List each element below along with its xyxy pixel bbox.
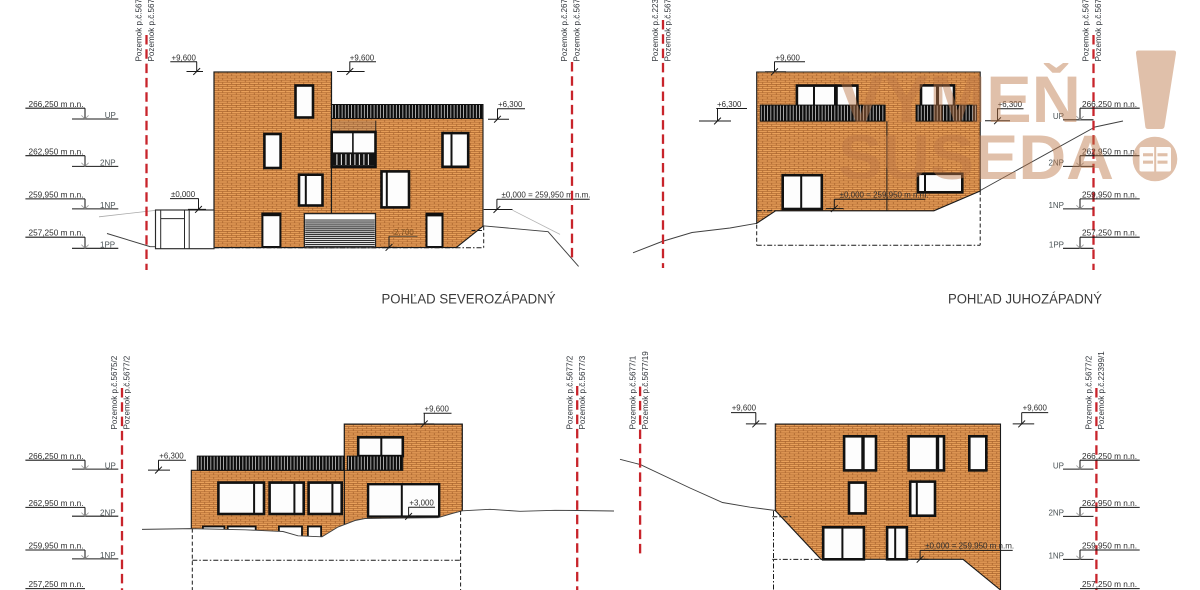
svg-text:Pozemok p.č.22399/1: Pozemok p.č.22399/1: [1097, 351, 1106, 430]
svg-text:262,950 m n.n.: 262,950 m n.n.: [29, 498, 84, 508]
svg-text:1NP: 1NP: [1048, 201, 1064, 210]
svg-text:259,950 m n.n.: 259,950 m n.n.: [29, 541, 84, 551]
svg-text:2NP: 2NP: [100, 159, 116, 168]
svg-text:1NP: 1NP: [100, 201, 116, 210]
svg-text:Pozemok p.č.5675/2: Pozemok p.č.5675/2: [135, 0, 144, 62]
svg-text:Pozemok p.č.5677/3: Pozemok p.č.5677/3: [578, 355, 587, 429]
svg-text:+3,000: +3,000: [409, 498, 434, 507]
svg-text:Pozemok p.č.5677/2: Pozemok p.č.5677/2: [147, 0, 156, 62]
svg-text:+6,300: +6,300: [717, 100, 742, 109]
svg-text:1PP: 1PP: [100, 241, 115, 250]
svg-text:POHĽAD JUHOZÁPADNÝ: POHĽAD JUHOZÁPADNÝ: [948, 291, 1102, 308]
svg-text:Pozemok p.č.5677/2: Pozemok p.č.5677/2: [565, 355, 574, 429]
svg-text:262,950 m n.n.: 262,950 m n.n.: [1082, 498, 1137, 508]
svg-text:+6,300: +6,300: [159, 452, 184, 461]
svg-text:UP: UP: [105, 461, 116, 470]
svg-text:Pozemok p.č.5677/19: Pozemok p.č.5677/19: [641, 351, 650, 430]
svg-text:266,250 m n.n.: 266,250 m n.n.: [29, 99, 84, 109]
svg-text:Pozemok p.č.22399/1: Pozemok p.č.22399/1: [651, 0, 660, 62]
svg-text:±0,000 = 259,950 m n.m.: ±0,000 = 259,950 m n.m.: [925, 542, 1014, 551]
svg-text:Pozemok p.č.5677/2: Pozemok p.č.5677/2: [1082, 0, 1091, 62]
svg-text:266,250 m n.n.: 266,250 m n.n.: [1082, 99, 1137, 109]
svg-text:POHĽAD SEVEROZÁPADNÝ: POHĽAD SEVEROZÁPADNÝ: [382, 291, 556, 308]
svg-text:Pozemok p.č.5677/2: Pozemok p.č.5677/2: [123, 355, 132, 429]
svg-text:Pozemok p.č.5677/1: Pozemok p.č.5677/1: [628, 355, 637, 429]
svg-text:262,950 m n.n.: 262,950 m n.n.: [29, 146, 84, 156]
svg-text:266,250 m n.n.: 266,250 m n.n.: [1082, 451, 1137, 461]
svg-text:257,250 m n.n.: 257,250 m n.n.: [1082, 579, 1137, 589]
svg-text:1PP: 1PP: [1049, 241, 1064, 250]
svg-text:1NP: 1NP: [1048, 552, 1064, 561]
svg-text:266,250 m n.n.: 266,250 m n.n.: [29, 451, 84, 461]
svg-text:SUSEDA: SUSEDA: [838, 123, 1114, 193]
svg-text:+9,600: +9,600: [172, 53, 197, 62]
svg-text:2NP: 2NP: [100, 509, 116, 518]
svg-text:259,950 m n.n.: 259,950 m n.n.: [29, 189, 84, 199]
svg-text:1NP: 1NP: [100, 551, 116, 560]
svg-text:+9,600: +9,600: [425, 405, 450, 414]
svg-text:257,250 m n.n.: 257,250 m n.n.: [29, 579, 84, 589]
svg-text:Pozemok p.č.2673/1: Pozemok p.č.2673/1: [560, 0, 569, 62]
svg-text:UP: UP: [105, 111, 116, 120]
svg-text:Pozemok p.č.5672/2: Pozemok p.č.5672/2: [573, 0, 582, 62]
svg-text:±0,000 = 259,950 m n.m.: ±0,000 = 259,950 m n.m.: [502, 190, 591, 199]
svg-text:Pozemok p.č.5675/2: Pozemok p.č.5675/2: [1094, 0, 1103, 62]
svg-text:257,250 m n.n.: 257,250 m n.n.: [29, 228, 84, 238]
svg-text:+9,600: +9,600: [1023, 404, 1048, 413]
svg-text:+6,300: +6,300: [498, 100, 523, 109]
svg-text:UP: UP: [1053, 461, 1064, 470]
svg-text:259,950 m n.n.: 259,950 m n.n.: [1082, 541, 1137, 551]
svg-text:Pozemok p.č.5677/19: Pozemok p.č.5677/19: [664, 0, 673, 62]
svg-text:+9,600: +9,600: [732, 404, 757, 413]
svg-text:2NP: 2NP: [1048, 509, 1064, 518]
svg-text:Pozemok p.č.5675/2: Pozemok p.č.5675/2: [110, 355, 119, 429]
svg-text:Pozemok p.č.5677/2: Pozemok p.č.5677/2: [1085, 355, 1094, 429]
svg-text:+9,600: +9,600: [350, 53, 375, 62]
svg-text:257,250 m n.n.: 257,250 m n.n.: [1082, 228, 1137, 238]
svg-text:-2,700: -2,700: [391, 228, 414, 237]
svg-text:+9,600: +9,600: [776, 53, 801, 62]
svg-text:±0,000: ±0,000: [171, 190, 196, 199]
